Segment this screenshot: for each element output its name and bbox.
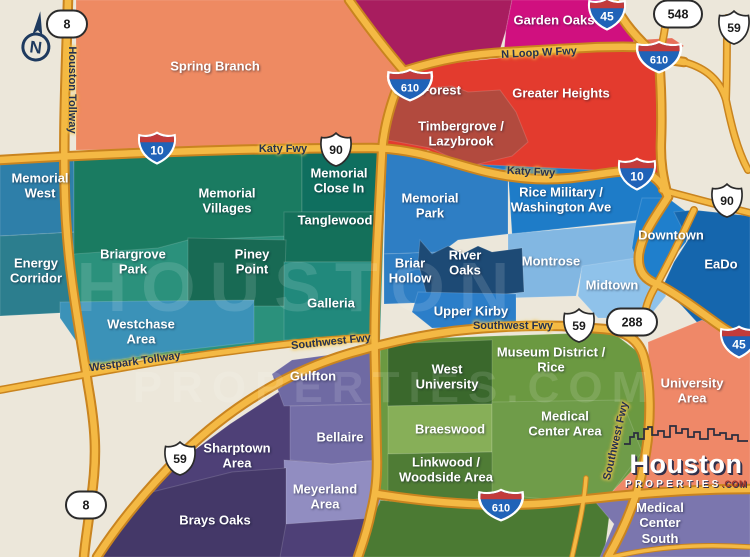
svg-text:90: 90: [720, 194, 734, 208]
compass-north-icon: N: [12, 4, 60, 74]
region-spring-branch: [76, 0, 404, 150]
shield-us90-west: 90: [319, 132, 353, 167]
svg-text:610: 610: [401, 82, 419, 94]
svg-text:59: 59: [727, 21, 741, 35]
region-galleria: [284, 262, 381, 340]
region-bellaire: [290, 404, 380, 464]
region-tanglewood: [284, 212, 383, 262]
svg-text:90: 90: [329, 143, 343, 157]
svg-text:610: 610: [492, 502, 510, 514]
shield-us90-east: 90: [710, 183, 744, 218]
region-west-university: [388, 340, 492, 406]
logo-brand-sub: PROPERTIES.COM: [618, 479, 750, 490]
svg-text:59: 59: [572, 319, 586, 333]
shield-beltway-8-south: 8: [65, 491, 107, 520]
region-braeswood: [388, 404, 492, 454]
skyline-icon: [624, 422, 748, 446]
shield-us59-mid: 59: [562, 308, 596, 343]
shield-i10-west: 10: [138, 132, 176, 165]
svg-text:10: 10: [150, 143, 164, 157]
svg-text:610: 610: [650, 54, 668, 66]
shield-sh288: 288: [606, 308, 658, 337]
svg-text:59: 59: [173, 452, 187, 466]
shield-i45-southeast: 45: [720, 326, 750, 359]
shield-beltway-548: 548: [653, 0, 703, 29]
shield-i10-east: 10: [618, 158, 656, 191]
shield-i45-north: 45: [588, 0, 626, 31]
svg-text:N: N: [29, 37, 44, 57]
shield-us59-northeast: 59: [717, 10, 750, 45]
houston-properties-logo: Houston PROPERTIES.COM: [618, 422, 750, 490]
region-piney-point: [188, 238, 286, 306]
houston-neighborhood-map: HOUSTON PROPERTIES.COM Spring Branch Oak…: [0, 0, 750, 557]
logo-brand-tld: .COM: [721, 479, 747, 489]
shield-us59-southwest: 59: [163, 441, 197, 476]
shield-i610-south: 610: [478, 489, 524, 522]
shield-i610-northeast: 610: [636, 41, 682, 74]
svg-text:45: 45: [732, 337, 746, 351]
shield-i610-northwest: 610: [387, 69, 433, 102]
logo-brand-name: Houston: [618, 451, 750, 478]
svg-text:10: 10: [630, 169, 644, 183]
svg-text:45: 45: [600, 9, 614, 23]
